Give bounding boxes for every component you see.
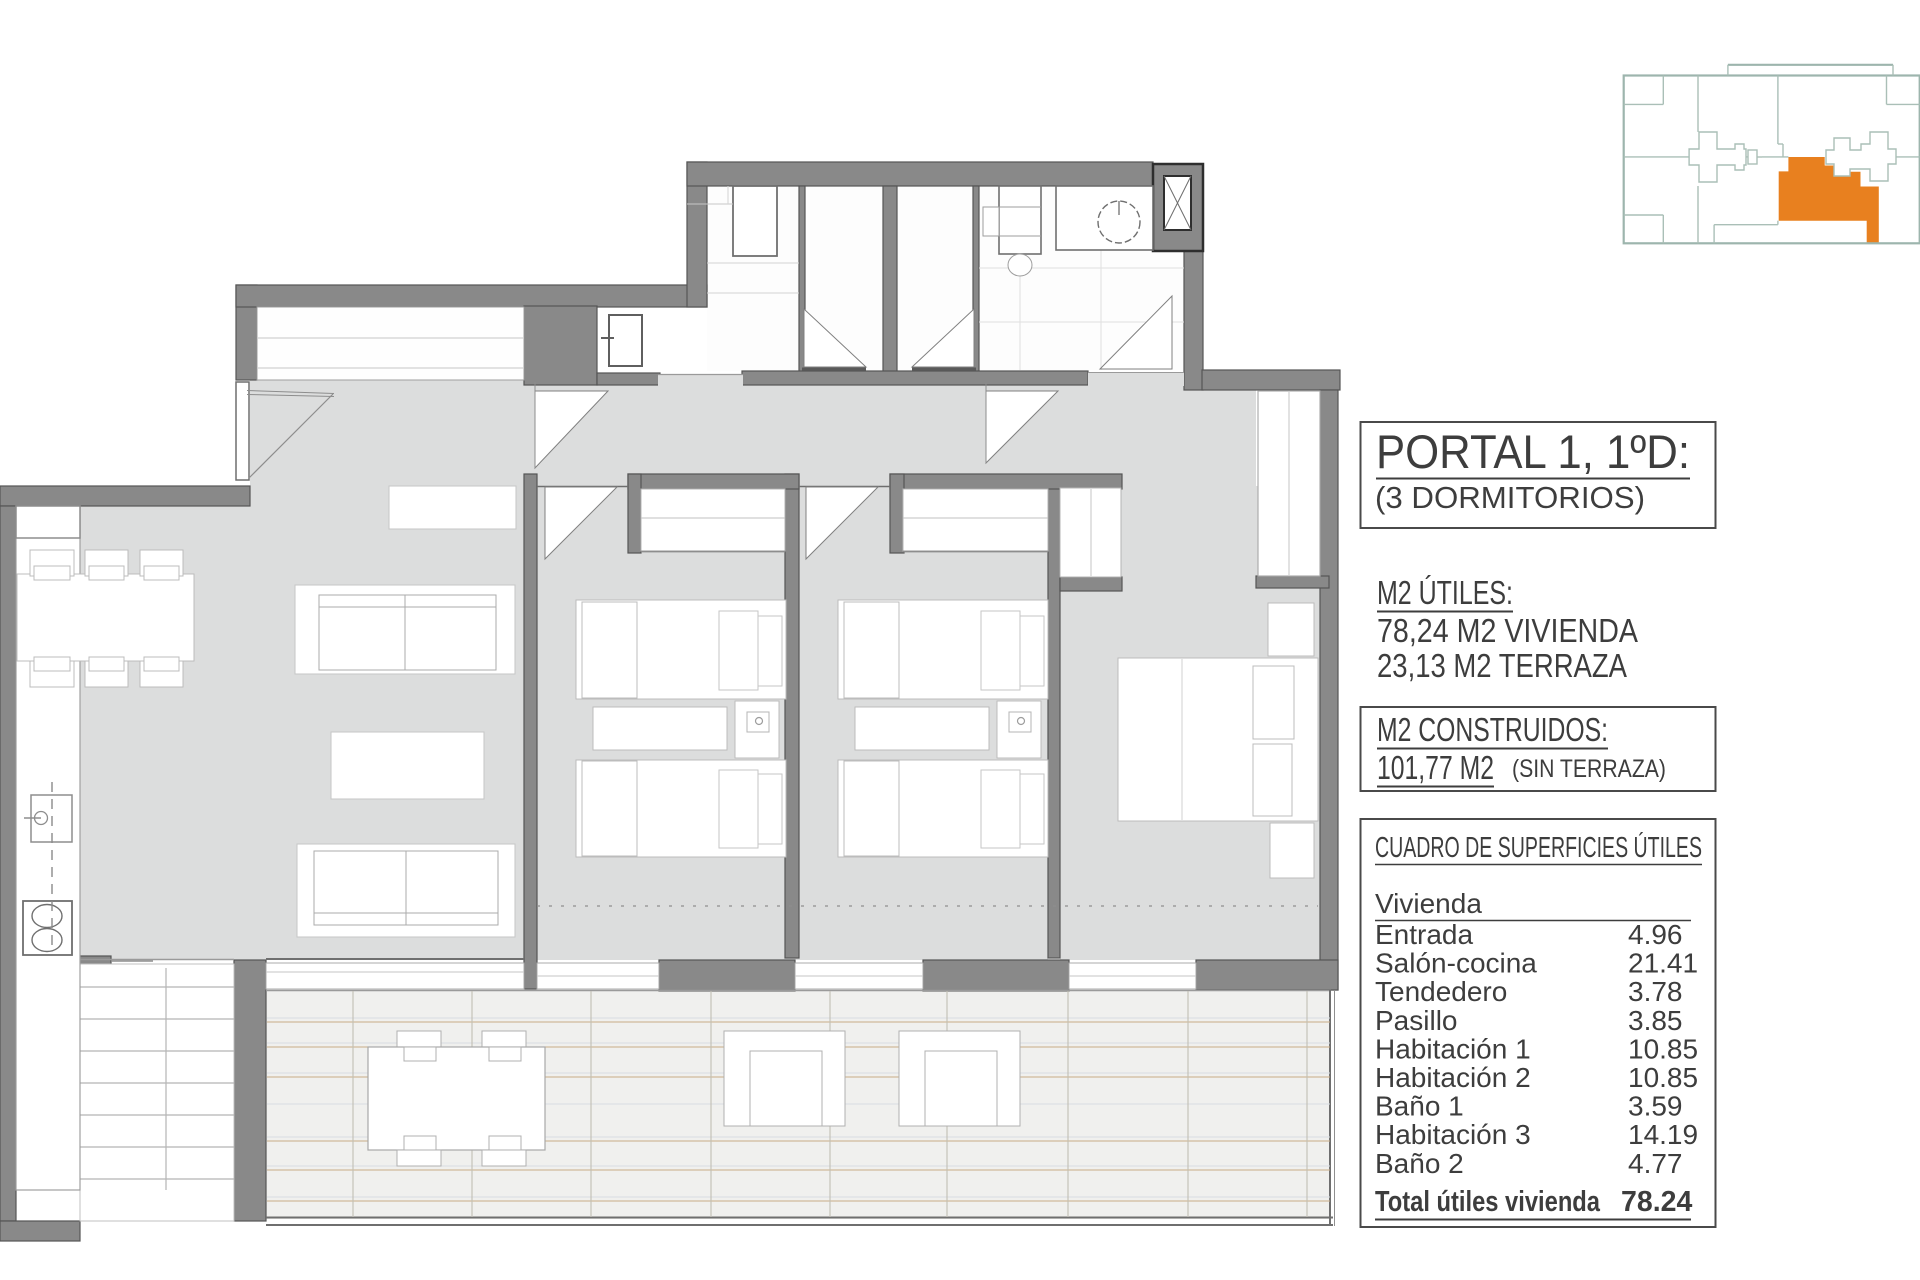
svg-text:(SIN TERRAZA): (SIN TERRAZA) [1512, 755, 1666, 783]
svg-text:M2 CONSTRUIDOS:: M2 CONSTRUIDOS: [1377, 711, 1608, 748]
svg-text:21.41: 21.41 [1628, 948, 1698, 979]
svg-text:78,24 M2 VIVIENDA: 78,24 M2 VIVIENDA [1377, 612, 1638, 649]
svg-text:14.19: 14.19 [1628, 1119, 1698, 1150]
svg-text:Total útiles vivienda: Total útiles vivienda [1375, 1186, 1601, 1218]
svg-text:M2 ÚTILES:: M2 ÚTILES: [1377, 574, 1513, 611]
svg-text:Baño 2: Baño 2 [1375, 1148, 1464, 1179]
svg-text:CUADRO DE SUPERFICIES ÚTILES: CUADRO DE SUPERFICIES ÚTILES [1375, 832, 1702, 864]
svg-text:(3 DORMITORIOS): (3 DORMITORIOS) [1375, 480, 1645, 515]
svg-text:Entrada: Entrada [1375, 919, 1473, 950]
svg-text:Tendedero: Tendedero [1375, 976, 1507, 1007]
svg-text:4.77: 4.77 [1628, 1148, 1683, 1179]
svg-text:78.24: 78.24 [1621, 1186, 1692, 1218]
svg-text:10.85: 10.85 [1628, 1062, 1698, 1093]
svg-text:Vivienda: Vivienda [1375, 888, 1482, 919]
svg-text:Baño 1: Baño 1 [1375, 1091, 1464, 1122]
svg-text:4.96: 4.96 [1628, 919, 1683, 950]
svg-text:Salón-cocina: Salón-cocina [1375, 948, 1537, 979]
svg-text:PORTAL 1, 1ºD:: PORTAL 1, 1ºD: [1376, 425, 1690, 478]
svg-text:Habitación 3: Habitación 3 [1375, 1119, 1531, 1150]
svg-text:101,77 M2: 101,77 M2 [1377, 749, 1494, 786]
svg-text:Habitación 1: Habitación 1 [1375, 1033, 1531, 1064]
svg-text:23,13 M2 TERRAZA: 23,13 M2 TERRAZA [1377, 647, 1627, 684]
svg-text:Pasillo: Pasillo [1375, 1005, 1457, 1036]
svg-text:3.78: 3.78 [1628, 976, 1683, 1007]
svg-text:3.59: 3.59 [1628, 1091, 1683, 1122]
svg-text:Habitación 2: Habitación 2 [1375, 1062, 1531, 1093]
svg-text:3.85: 3.85 [1628, 1005, 1683, 1036]
svg-text:10.85: 10.85 [1628, 1033, 1698, 1064]
